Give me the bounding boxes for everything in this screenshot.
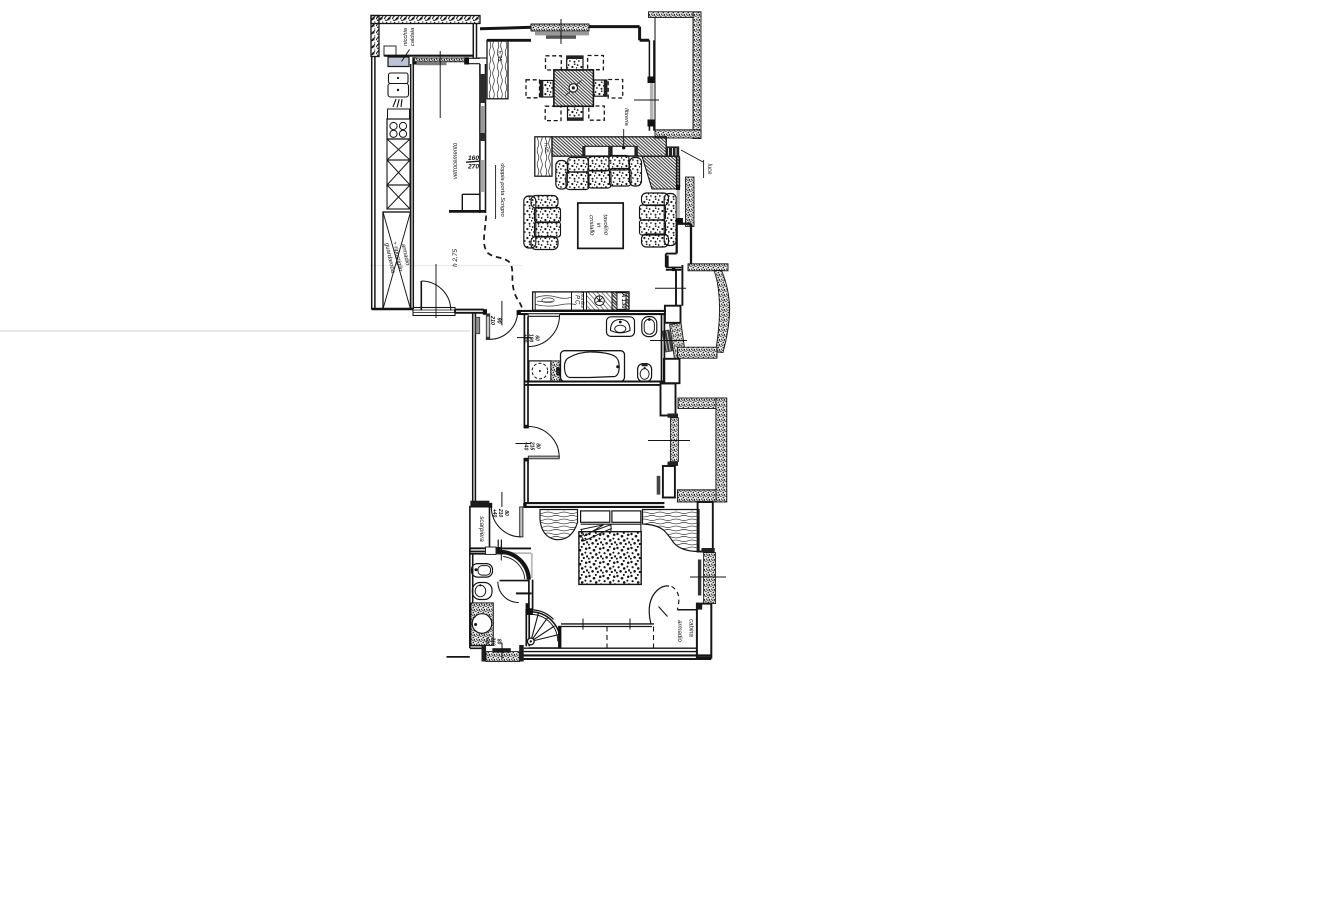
- svg-text:tavolino: tavolino: [602, 214, 609, 236]
- svg-text:caldaia: caldaia: [410, 27, 416, 46]
- svg-text:+40: +40: [491, 509, 497, 518]
- svg-text:armadio: armadio: [676, 620, 682, 642]
- svg-text:h 2,75: h 2,75: [452, 249, 459, 267]
- svg-text:nicchia: nicchia: [403, 27, 409, 46]
- svg-text:in: in: [595, 223, 601, 229]
- svg-text:210: 210: [489, 315, 495, 325]
- svg-text:270: 270: [467, 164, 479, 171]
- svg-text:luce: luce: [706, 163, 712, 175]
- svg-text:doppia porta Scrigno: doppia porta Scrigno: [499, 163, 505, 217]
- svg-text:90: 90: [496, 317, 502, 323]
- svg-text:P.C.: P.C.: [574, 295, 580, 306]
- svg-text:A 130: A 130: [620, 292, 626, 309]
- svg-text:libreria: libreria: [623, 108, 629, 126]
- svg-text:cristallo: cristallo: [588, 215, 595, 236]
- svg-text:+40: +40: [523, 442, 529, 451]
- svg-text:600: 600: [556, 367, 561, 375]
- svg-text:scarpiera: scarpiera: [478, 516, 485, 542]
- svg-text:cabina: cabina: [688, 619, 694, 637]
- svg-text:+40: +40: [484, 637, 490, 646]
- svg-text:h.95: h.95: [496, 51, 502, 63]
- svg-text:vetrocemento: vetrocemento: [453, 142, 459, 179]
- svg-text:+20: +20: [522, 334, 528, 343]
